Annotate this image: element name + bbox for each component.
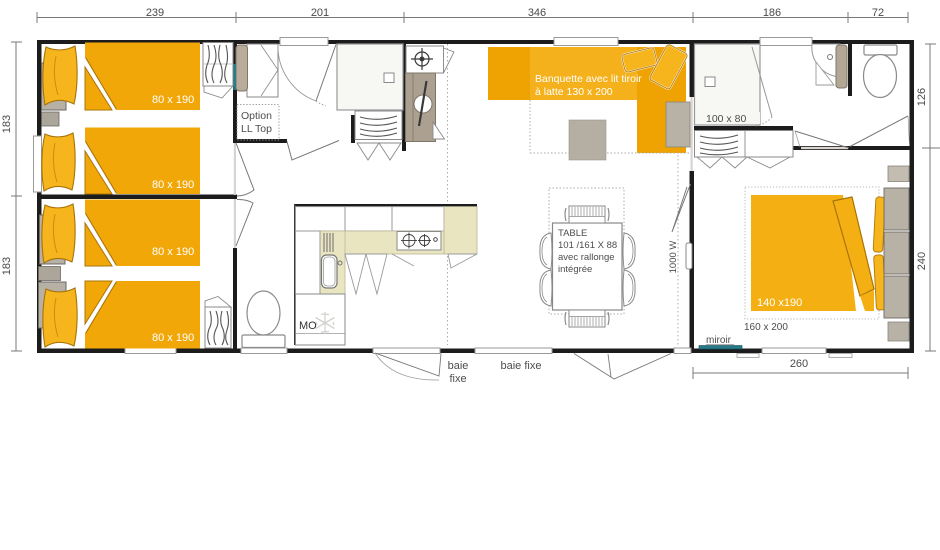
svg-text:avec rallonge: avec rallonge [558, 252, 615, 263]
svg-text:1000 W: 1000 W [668, 241, 679, 274]
svg-text:MO: MO [299, 320, 317, 332]
svg-text:baie: baie [448, 360, 469, 372]
svg-text:183: 183 [1, 115, 13, 133]
svg-text:183: 183 [1, 257, 13, 275]
svg-text:80 x 190: 80 x 190 [152, 332, 194, 344]
svg-text:126: 126 [916, 88, 928, 106]
svg-text:80 x 190: 80 x 190 [152, 179, 194, 191]
svg-text:fixe: fixe [449, 373, 466, 385]
svg-text:186: 186 [763, 7, 781, 19]
svg-text:Option: Option [241, 110, 272, 122]
svg-text:Banquette avec lit tiroir: Banquette avec lit tiroir [535, 73, 642, 85]
svg-text:TABLE: TABLE [558, 228, 587, 239]
svg-text:80 x 190: 80 x 190 [152, 246, 194, 258]
svg-text:140 x190: 140 x190 [757, 297, 802, 309]
svg-text:80 x 190: 80 x 190 [152, 94, 194, 106]
svg-text:à latte 130 x 200: à latte 130 x 200 [535, 86, 613, 98]
svg-text:101 /161 X 88: 101 /161 X 88 [558, 240, 617, 251]
svg-text:LL Top: LL Top [241, 123, 272, 135]
svg-text:miroir: miroir [706, 335, 732, 346]
svg-text:201: 201 [311, 7, 329, 19]
svg-text:239: 239 [146, 7, 164, 19]
svg-text:260: 260 [790, 358, 808, 370]
svg-text:baie fixe: baie fixe [501, 360, 542, 372]
svg-text:intégrée: intégrée [558, 264, 592, 275]
svg-text:160 x 200: 160 x 200 [744, 322, 788, 333]
svg-text:72: 72 [872, 7, 884, 19]
svg-text:346: 346 [528, 7, 546, 19]
svg-text:100 x 80: 100 x 80 [706, 113, 746, 125]
svg-text:240: 240 [916, 252, 928, 270]
